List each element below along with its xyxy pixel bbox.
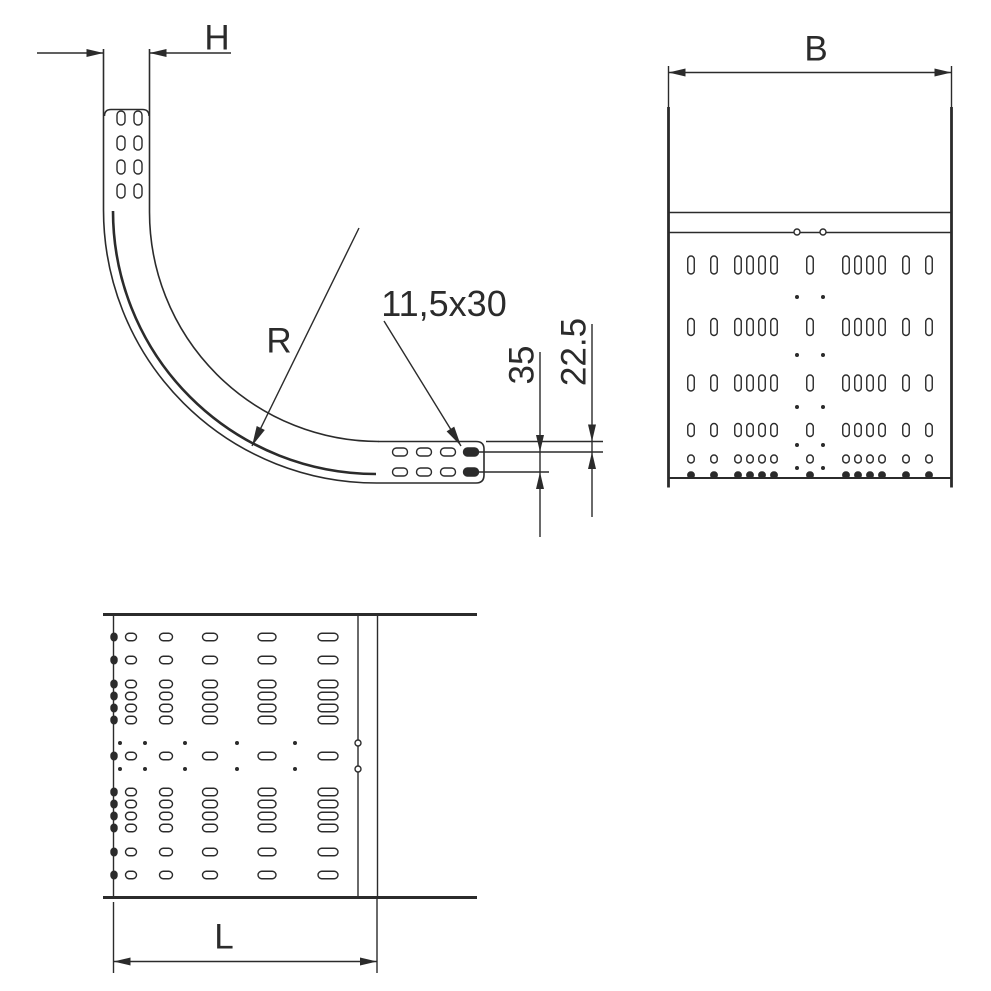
dim-label-radius: R — [266, 324, 291, 359]
plan-view — [103, 615, 477, 898]
dim-label-slot-offset: 22.5 — [557, 318, 592, 386]
drawing-linework — [0, 0, 991, 991]
dimension-lines — [37, 49, 952, 973]
dim-label-length: L — [214, 920, 233, 955]
technical-drawing-canvas: H B R 11,5x30 35 22.5 L — [0, 0, 991, 991]
dim-label-slot-size: 11,5x30 — [381, 286, 506, 322]
side-view-bend — [104, 49, 604, 483]
rear-view — [668, 66, 952, 488]
dim-label-height: H — [204, 21, 229, 56]
dim-label-width: B — [804, 32, 827, 67]
dim-label-end-height: 35 — [505, 346, 540, 385]
